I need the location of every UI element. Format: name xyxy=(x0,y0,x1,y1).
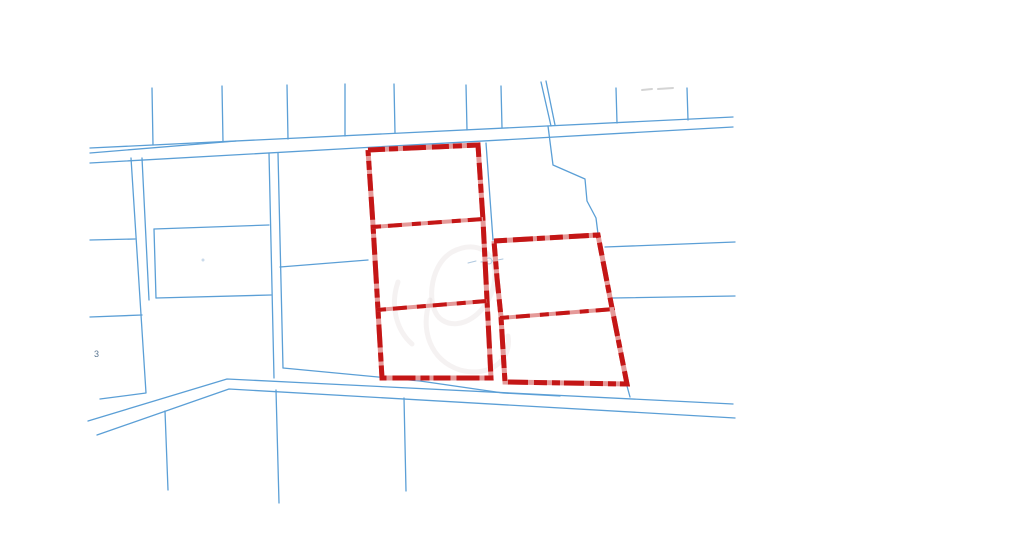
stepped-boundary xyxy=(548,126,598,234)
north-lot-line-9 xyxy=(616,88,617,123)
north-lot-line-5 xyxy=(394,84,395,133)
left-boundary-with-corner xyxy=(100,158,146,399)
mid-parcel-box-top xyxy=(154,225,269,229)
mid-parcel-box-left xyxy=(154,229,156,298)
north-lot-line-10 xyxy=(687,88,688,120)
west-lane-edge-right xyxy=(278,153,283,368)
north-lot-line-8a xyxy=(541,82,551,126)
mid-vertical-boundary xyxy=(486,143,493,240)
watermark-curl-2 xyxy=(426,300,508,372)
parcel-number-label: 3 xyxy=(94,349,99,359)
north-lot-line-7 xyxy=(501,86,502,128)
west-lane-edge-left xyxy=(269,153,274,378)
bottom-road-lower-edge xyxy=(97,389,735,435)
cadastral-map-canvas[interactable]: 3 xyxy=(0,0,1024,549)
map-viewport[interactable]: 3 xyxy=(0,0,1024,549)
watermark-curl-3 xyxy=(394,282,412,344)
west-diagonal-connector xyxy=(280,260,368,267)
left-edge-spur-1 xyxy=(90,239,135,240)
mid-parcel-box-bottom xyxy=(156,295,271,298)
north-lot-line-2 xyxy=(222,86,223,142)
south-lot-line-3 xyxy=(404,398,406,491)
faint-gray-dashes xyxy=(642,88,673,90)
south-lot-line-2 xyxy=(276,390,279,503)
south-lot-line-1 xyxy=(165,411,168,490)
east-parcel-line-upper xyxy=(605,242,735,247)
north-lot-line-8b xyxy=(546,81,555,125)
north-lot-line-1 xyxy=(152,88,153,145)
left-edge-spur-2 xyxy=(90,315,142,317)
north-lot-line-6 xyxy=(466,85,467,130)
left-boundary-pair xyxy=(142,158,149,300)
north-lot-line-3 xyxy=(287,85,288,139)
frontage-corner-stub xyxy=(627,386,630,397)
east-parcel-line-lower xyxy=(613,296,735,298)
small-dot-mark xyxy=(202,259,205,262)
selected-parcels-east-divider-1 xyxy=(500,309,614,318)
selected-parcels-east[interactable] xyxy=(494,235,627,384)
